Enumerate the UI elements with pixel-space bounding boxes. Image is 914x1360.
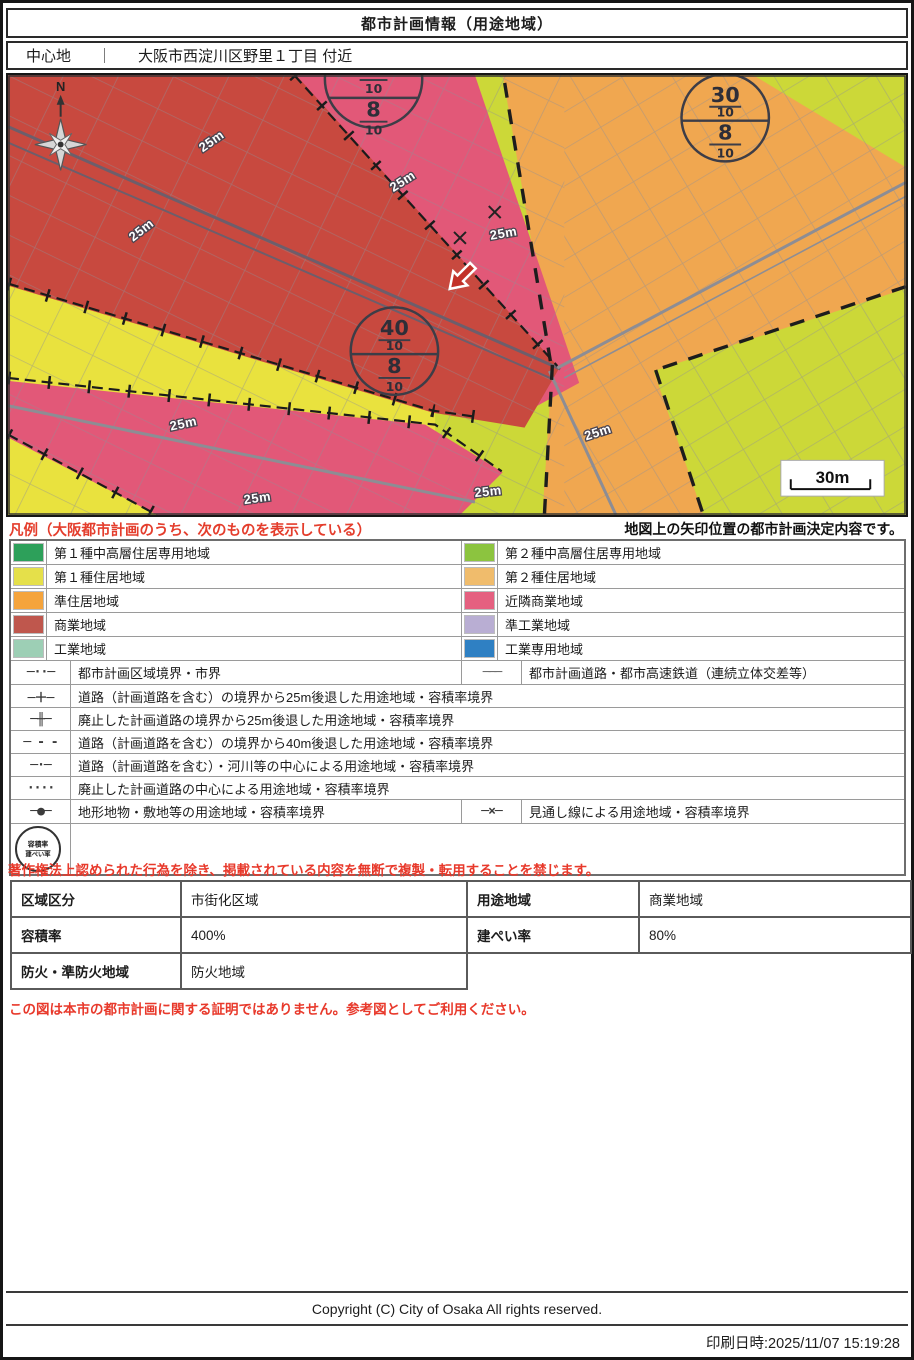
line-label: 廃止した計画道路の中心による用途地域・容積率境界: [71, 777, 904, 799]
legend-zone-row: 準住居地域 近隣商業地域: [11, 589, 904, 613]
svg-text:8: 8: [366, 98, 381, 122]
legend-line-row: ─··─ 都市計画区域境界・市界 ─── 都市計画道路・都市高速鉄道（連続立体交…: [11, 661, 904, 685]
street-grid-left: [8, 75, 564, 515]
line-label: 地形地物・敷地等の用途地域・容積率境界: [71, 800, 462, 823]
zone-swatch: [464, 591, 495, 610]
table-row: 区域区分 市街化区域 用途地域 商業地域: [10, 880, 912, 918]
legend-zone-row: 第１種中高層住居専用地域 第２種中高層住居専用地域: [11, 541, 904, 565]
svg-text:30: 30: [711, 83, 740, 107]
line-label: 道路（計画道路を含む）の境界から25m後退した用途地域・容積率境界: [71, 685, 904, 707]
cell-value: 防火地域: [180, 952, 468, 990]
legend-zone-row: 工業地域 工業専用地域: [11, 637, 904, 661]
zoning-map-canvas: 10 8 10 30 10 8 10 40 10: [8, 75, 906, 515]
svg-text:30m: 30m: [816, 468, 850, 487]
table-row: 容積率 400% 建ぺい率 80%: [10, 918, 912, 954]
svg-text:10: 10: [386, 338, 404, 353]
line-label: 道路（計画道路を含む）・河川等の中心による用途地域・容積率境界: [71, 754, 904, 776]
zone-label: 準工業地域: [498, 613, 904, 636]
cell-value: 商業地域: [638, 880, 912, 918]
cell-header: 防火・準防火地域: [10, 952, 182, 990]
svg-text:10: 10: [717, 105, 735, 120]
footer-copyright: Copyright (C) City of Osaka All rights r…: [6, 1291, 908, 1326]
zone-swatch: [464, 543, 495, 562]
svg-text:10: 10: [365, 81, 383, 96]
zone-swatch: [464, 615, 495, 634]
svg-text:40: 40: [380, 316, 409, 340]
line-label: 見通し線による用途地域・容積率境界: [522, 800, 904, 823]
zone-label: 第２種中高層住居専用地域: [498, 541, 904, 564]
zone-swatch: [464, 639, 495, 658]
legend-line-row: ─·─ 道路（計画道路を含む）・河川等の中心による用途地域・容積率境界: [11, 754, 904, 777]
zone-label: 工業専用地域: [498, 637, 904, 660]
legend-line-row: ─＋─ 道路（計画道路を含む）の境界から25m後退した用途地域・容積率境界: [11, 685, 904, 708]
center-location-row: 中心地 ｜ 大阪市西淀川区野里１丁目 付近: [6, 41, 908, 70]
zone-swatch: [13, 567, 44, 586]
zone-label: 第１種中高層住居専用地域: [47, 541, 462, 564]
legend-line-row: ···· 廃止した計画道路の中心による用途地域・容積率境界: [11, 777, 904, 800]
line-label: 道路（計画道路を含む）の境界から40m後退した用途地域・容積率境界: [71, 731, 904, 753]
cell-header: 用途地域: [466, 880, 640, 918]
svg-text:8: 8: [718, 121, 733, 145]
svg-text:25m: 25m: [474, 482, 503, 500]
center-line-icon: ─·─: [11, 758, 70, 773]
page-title: 都市計画情報（用途地域）: [361, 13, 553, 34]
zone-label: 準住居地域: [47, 589, 462, 612]
sightline-line-icon: ─×─: [462, 804, 521, 819]
footer-print-datetime: 印刷日時:2025/11/07 15:19:28: [6, 1328, 908, 1356]
legend-line-row: ─●─ 地形地物・敷地等の用途地域・容積率境界 ─×─ 見通し線による用途地域・…: [11, 800, 904, 824]
zone-label: 商業地域: [47, 613, 462, 636]
zone-swatch: [464, 567, 495, 586]
legend-zone-row: 第１種住居地域 第２種住居地域: [11, 565, 904, 589]
legend-arrow-note: 地図上の矢印位置の都市計画決定内容です。: [624, 519, 903, 539]
zoning-map: 10 8 10 30 10 8 10 40 10: [6, 73, 908, 517]
scale-bar: 30m: [781, 460, 884, 496]
line-label: 都市計画区域境界・市界: [71, 661, 462, 684]
legend-line-row: ─ - - 道路（計画道路を含む）の境界から40m後退した用途地域・容積率境界: [11, 731, 904, 754]
legend-line-row: ─╫─ 廃止した計画道路の境界から25m後退した用途地域・容積率境界: [11, 708, 904, 731]
legend-title: 凡例（大阪都市計画のうち、次のものを表示している）: [9, 519, 371, 540]
zone-label: 第２種住居地域: [498, 565, 904, 588]
cell-value: 400%: [180, 916, 468, 954]
setback40-line-icon: ─ - -: [11, 735, 70, 750]
line-label: 廃止した計画道路の境界から25m後退した用途地域・容積率境界: [71, 708, 904, 730]
center-address: 大阪市西淀川区野里１丁目 付近: [138, 45, 352, 66]
planning-decision-table: 区域区分 市街化区域 用途地域 商業地域 容積率 400% 建ぺい率 80% 防…: [10, 880, 912, 990]
legend-table: 第１種中高層住居専用地域 第２種中高層住居専用地域 第１種住居地域 第２種住居地…: [9, 539, 906, 876]
abolished25-line-icon: ─╫─: [11, 712, 70, 727]
cell-header: 区域区分: [10, 880, 182, 918]
line-label: 都市計画道路・都市高速鉄道（連続立体交差等）: [522, 661, 904, 684]
center-label: 中心地: [26, 45, 71, 66]
zone-swatch: [13, 639, 44, 658]
svg-text:10: 10: [386, 379, 404, 394]
boundary-line-icon: ─··─: [11, 665, 70, 680]
zone-swatch: [13, 615, 44, 634]
cell-value: 80%: [638, 916, 912, 954]
zone-label: 第１種住居地域: [47, 565, 462, 588]
center-separator: ｜: [97, 45, 112, 66]
zone-swatch: [13, 543, 44, 562]
setback25-line-icon: ─＋─: [11, 687, 70, 706]
table-row: 防火・準防火地域 防火地域: [10, 954, 912, 990]
svg-text:10: 10: [365, 123, 383, 138]
svg-text:N: N: [56, 79, 65, 94]
legend-zone-row: 商業地域 準工業地域: [11, 613, 904, 637]
zone-label: 工業地域: [47, 637, 462, 660]
street-grid-right: [564, 75, 906, 515]
dotted-line-icon: ····: [11, 781, 70, 796]
cell-header: 容積率: [10, 916, 182, 954]
svg-text:10: 10: [717, 145, 735, 160]
terrain-line-icon: ─●─: [11, 804, 70, 819]
reference-note: この図は本市の都市計画に関する証明ではありません。参考図としてご利用ください。: [9, 998, 535, 1018]
road-line-icon: ───: [462, 665, 521, 680]
cell-header: 建ぺい率: [466, 916, 640, 954]
page-title-box: 都市計画情報（用途地域）: [6, 8, 908, 38]
svg-text:8: 8: [387, 354, 402, 378]
copyright-warning: 著作権法上認められた行為を除き、掲載されている内容を無断で複製・転用することを禁…: [8, 859, 599, 879]
zone-label: 近隣商業地域: [498, 589, 904, 612]
cell-value: 市街化区域: [180, 880, 468, 918]
print-page: 都市計画情報（用途地域） 中心地 ｜ 大阪市西淀川区野里１丁目 付近: [0, 0, 914, 1360]
zone-swatch: [13, 591, 44, 610]
